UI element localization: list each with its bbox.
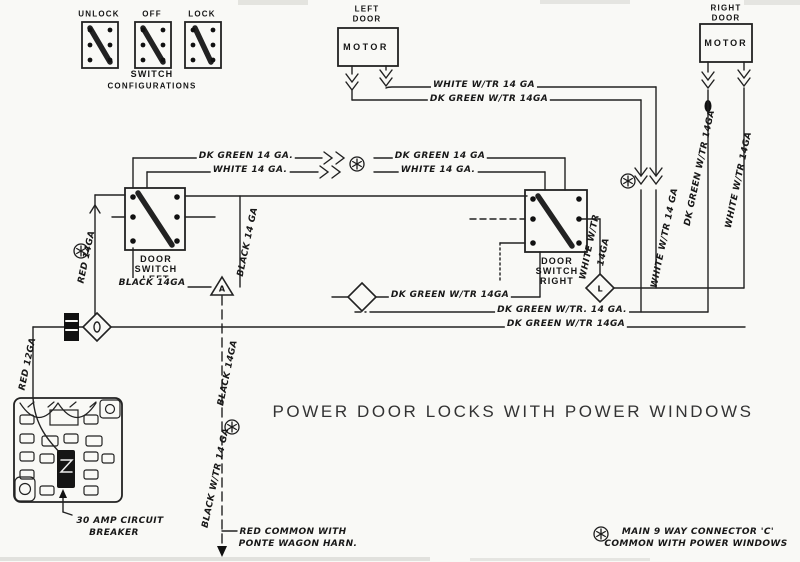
circuit-breaker-note: 30 AMP CIRCUIT (76, 516, 163, 526)
fuse-block (14, 398, 122, 502)
switch-config-off (135, 22, 171, 68)
switch-config-label-lock: LOCK (188, 10, 215, 19)
switch-config-lock (185, 22, 221, 68)
wire-label-black-14: BLACK 14GA (117, 278, 188, 288)
connector-l-letter: L (597, 285, 602, 294)
main-connector-note: COMMON WITH POWER WINDOWS (604, 539, 787, 549)
switch-config-unlock (82, 22, 118, 68)
diagram-title: POWER DOOR LOCKS WITH POWER WINDOWS (272, 402, 753, 422)
wire-label-dk-green-14: DK GREEN 14 GA (393, 151, 487, 161)
right-motor-label: MOTOR (704, 38, 747, 48)
left-motor-location: DOOR (353, 15, 382, 24)
wire-label-white-14: WHITE 14 GA. (399, 165, 478, 175)
harness-note: PONTE WAGON HARN. (239, 539, 358, 549)
wire-top-white (386, 87, 662, 288)
switch-config-label-unlock: UNLOCK (78, 10, 119, 19)
wire-mid-white (147, 166, 545, 190)
right-switch-label: SWITCH (536, 266, 579, 276)
wire-label-white-wtr: WHITE W/TR 14 GA (431, 80, 537, 90)
main-connector-note: MAIN 9 WAY CONNECTOR 'C' (622, 527, 774, 537)
left-motor-location: LEFT (355, 5, 380, 14)
wire-label-white-14: WHITE 14 GA. (211, 165, 290, 175)
left-switch-label: SWITCH (135, 264, 178, 274)
right-switch-label: DOOR (541, 256, 573, 266)
circuit-breaker-fuse (57, 450, 75, 488)
wire-label-dk-green-wtr: DK GREEN W/TR 14GA (505, 319, 627, 329)
bulkhead-connector (64, 313, 79, 341)
circuit-breaker-note: BREAKER (89, 528, 139, 538)
right-motor-location: DOOR (712, 14, 741, 23)
left-door-motor (338, 28, 398, 90)
diamond-connector-l (586, 274, 744, 302)
switch-config-caption: CONFIGURATIONS (107, 82, 196, 91)
wiring-diagram-page: UNLOCK OFF LOCK SWITCH CONFIGURATIONS LE… (0, 0, 800, 562)
wire-label-dk-green-14: DK GREEN 14 GA. (197, 151, 295, 161)
right-motor-location: RIGHT (711, 4, 742, 13)
wire-label-dk-green-wtr: DK GREEN W/TR. 14 GA. (495, 305, 629, 315)
left-motor-label: MOTOR (343, 42, 389, 52)
inline-connector-icon (350, 157, 364, 171)
ground-connector-a (211, 277, 237, 557)
wire-label-dk-green-wtr: DK GREEN W/TR 14GA (389, 290, 511, 300)
right-switch-label: RIGHT (540, 276, 574, 286)
switch-config-label-off: OFF (142, 10, 162, 19)
left-switch-label: DOOR (140, 254, 172, 264)
harness-note: RED COMMON WITH (239, 527, 346, 537)
connector-a-letter: A (219, 285, 225, 294)
inline-connector-icon (621, 174, 635, 188)
switch-config-caption: SWITCH (131, 69, 174, 79)
wire-label-dk-green-wtr: DK GREEN W/TR 14GA (428, 94, 550, 104)
diamond-connector (83, 313, 111, 341)
wire-low-dk-green-1 (332, 252, 540, 311)
